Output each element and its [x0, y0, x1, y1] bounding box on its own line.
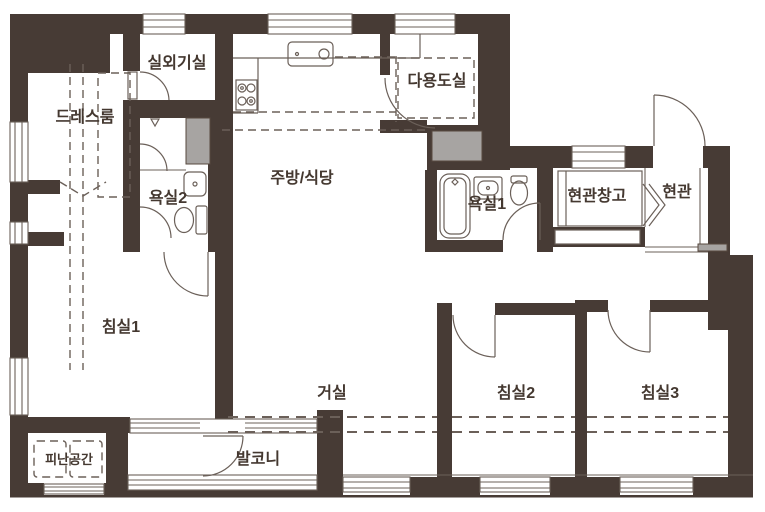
- window-bedroom1-balcony: [130, 419, 317, 433]
- room-label-entry-storage: 현관창고: [568, 186, 627, 205]
- room-label-refuge: 피난공간: [45, 452, 93, 467]
- entry-threshold: [698, 244, 727, 251]
- storage-shelf: [555, 171, 642, 244]
- window-top-outdoor-unit: [143, 14, 185, 34]
- bathroom2-toilet: [175, 206, 208, 234]
- door-bedroom2: [453, 315, 495, 357]
- room-label-living: 거실: [317, 384, 346, 402]
- room-label-bedroom2: 침실2: [497, 383, 535, 402]
- kitchen-sink: [288, 42, 333, 66]
- walls: [10, 14, 753, 498]
- room-label-entry: 현관: [662, 182, 692, 201]
- bathroom2-sink: [184, 172, 206, 196]
- door-shower-bath2: [140, 144, 167, 171]
- room-label-dress-room: 드레스룸: [56, 108, 115, 126]
- room-label-bathroom1: 욕실1: [468, 195, 506, 213]
- door-bedroom3: [608, 310, 650, 352]
- room-label-outdoor-unit: 실외기실: [148, 54, 207, 72]
- floorplan-canvas: 실외기실 드레스룸 욕실2 주방/식당 다용도실 욕실1 현관창고 현관 침실1…: [0, 0, 765, 512]
- bathroom1-bathtub: [440, 174, 470, 238]
- duct-bathroom1: [432, 131, 482, 161]
- room-label-utility: 다용도실: [408, 72, 467, 90]
- kitchen-stove: [236, 80, 257, 110]
- bathroom2-shower-head: [151, 119, 159, 126]
- window-living-bottom-1: [343, 477, 410, 492]
- room-label-balcony: 발코니: [236, 450, 280, 468]
- bathroom1-toilet: [511, 176, 528, 205]
- window-living-bottom-2: [480, 477, 550, 492]
- door-bathroom1: [503, 203, 540, 240]
- room-label-bathroom2: 욕실2: [149, 189, 187, 207]
- room-label-bedroom3: 침실3: [641, 383, 679, 402]
- door-bedroom1: [164, 252, 208, 296]
- window-living-bottom-3: [620, 477, 693, 492]
- window-entry-wall: [572, 146, 625, 168]
- door-bathroom2: [140, 207, 171, 238]
- window-left-3: [10, 358, 28, 415]
- room-label-kitchen: 주방/식당: [270, 169, 334, 187]
- door-main-entry: [654, 95, 705, 146]
- window-top-utility: [395, 14, 455, 34]
- window-refuge-bottom: [44, 484, 104, 494]
- duct-bathroom2: [186, 118, 210, 164]
- window-left-2: [10, 222, 28, 244]
- floorplan: 실외기실 드레스룸 욕실2 주방/식당 다용도실 욕실1 현관창고 현관 침실1…: [0, 0, 765, 512]
- ducts: [186, 118, 727, 251]
- window-left-1: [10, 122, 28, 182]
- room-label-bedroom1: 침실1: [102, 317, 140, 336]
- window-top-kitchen: [268, 14, 352, 34]
- window-balcony-bottom: [128, 475, 317, 490]
- door-outdoor-unit: [128, 72, 169, 100]
- kitchen-counter: [233, 34, 420, 113]
